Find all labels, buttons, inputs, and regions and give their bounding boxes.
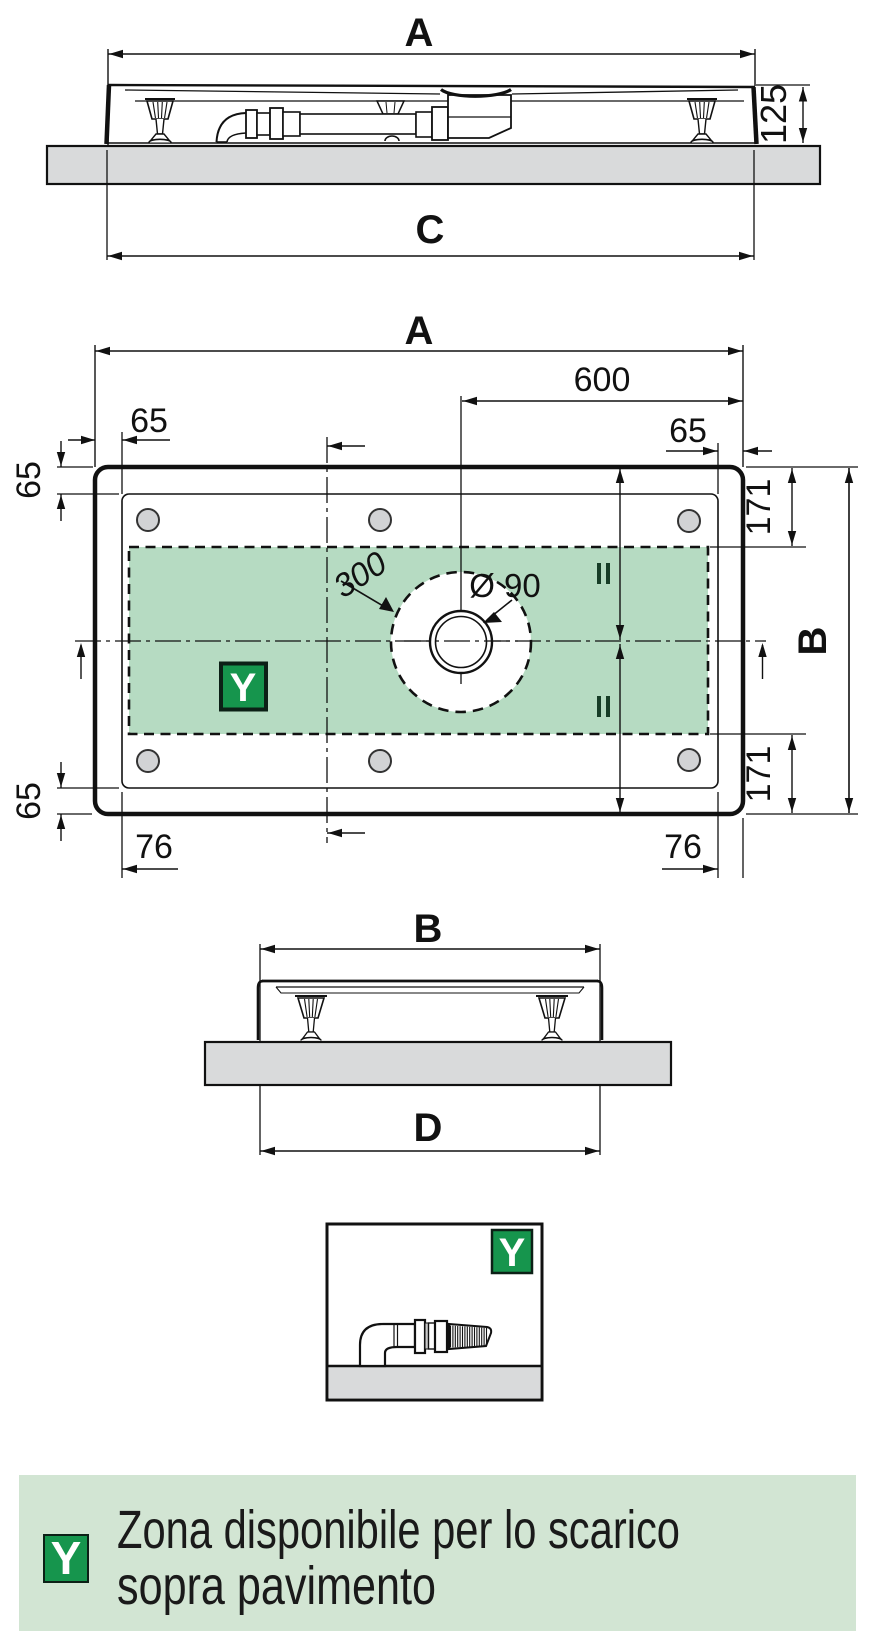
svg-text:C: C (416, 208, 445, 252)
svg-text:Y: Y (499, 1231, 526, 1275)
svg-text:76: 76 (664, 828, 702, 866)
svg-text:Ø 90: Ø 90 (469, 567, 541, 604)
svg-text:A: A (405, 309, 434, 353)
svg-text:B: B (791, 627, 835, 656)
svg-text:65: 65 (10, 782, 48, 820)
svg-text:171: 171 (740, 479, 778, 536)
svg-text:600: 600 (574, 361, 631, 399)
svg-text:76: 76 (135, 828, 173, 866)
svg-text:D: D (414, 1106, 443, 1150)
svg-text:Y: Y (51, 1532, 82, 1584)
svg-text:B: B (414, 907, 443, 951)
svg-text:65: 65 (669, 412, 707, 450)
svg-text:65: 65 (10, 461, 48, 499)
svg-text:sopra pavimento: sopra pavimento (117, 1556, 436, 1616)
svg-text:Zona disponibile per lo scaric: Zona disponibile per lo scarico (117, 1500, 680, 1560)
svg-text:65: 65 (130, 402, 168, 440)
svg-text:125: 125 (753, 84, 794, 144)
svg-text:171: 171 (740, 746, 778, 803)
svg-text:Y: Y (230, 666, 257, 710)
svg-text:A: A (405, 11, 434, 55)
